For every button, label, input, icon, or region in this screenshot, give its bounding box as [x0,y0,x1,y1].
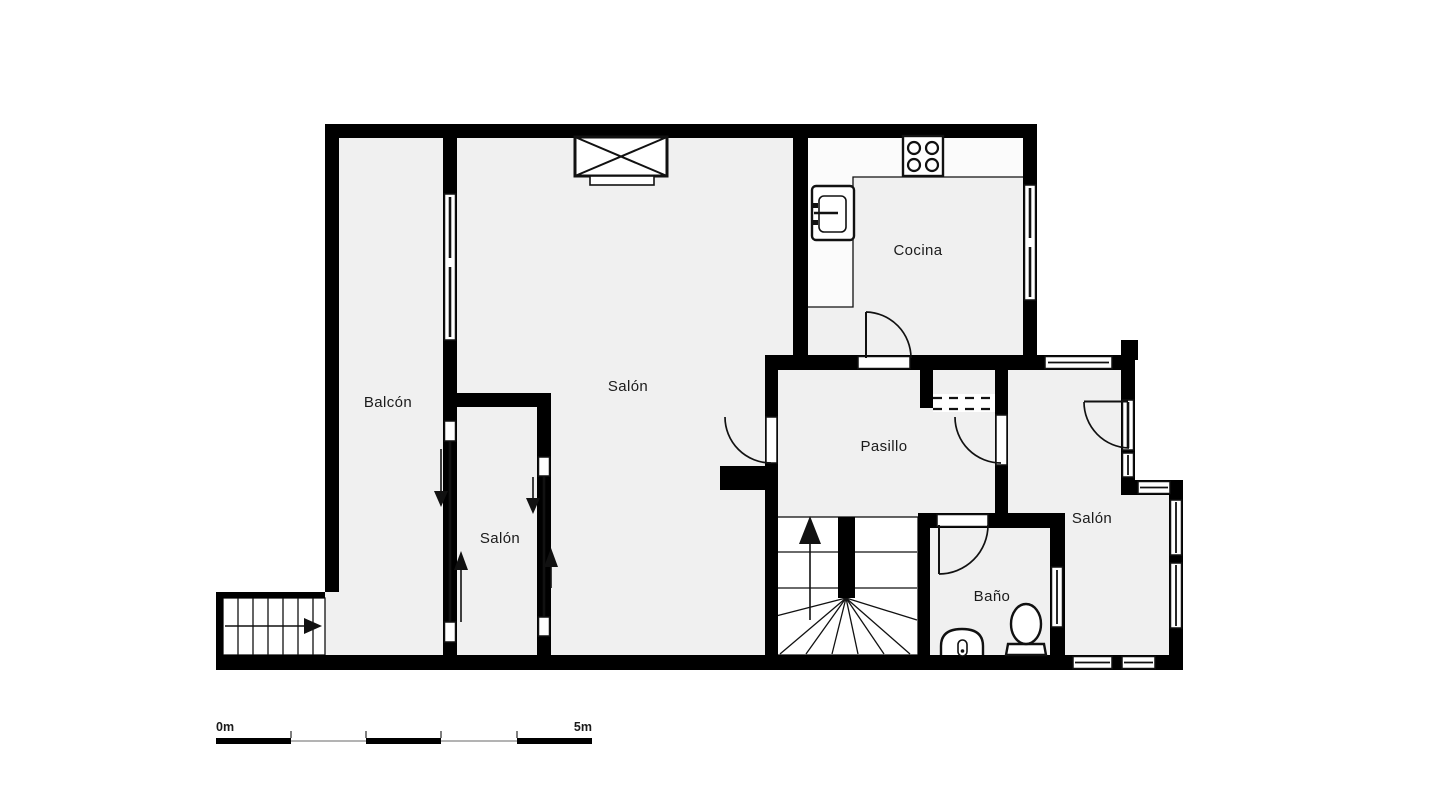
room-label-salon-small: Salón [480,530,520,547]
wall-salon-small-top [443,393,551,407]
floor-plan-page: Balcón Salón Salón Cocina Pasillo Baño S… [0,0,1440,810]
room-label-bano: Baño [974,588,1011,605]
window-salon-right-east [1123,453,1134,477]
room-label-balcon: Balcón [364,394,412,411]
building-floor [216,124,1183,670]
entrance-staircase [223,598,325,655]
scale-ticks [291,731,517,738]
window-cocina-right [1025,185,1036,300]
room-label-salon-right: Salón [1072,510,1112,527]
scale-label-start: 0m [216,720,234,734]
scale-label-end: 5m [574,720,592,734]
room-label-pasillo: Pasillo [861,438,908,455]
room-label-cocina: Cocina [893,242,942,259]
wall-left [325,124,339,592]
stair-divider-wall [838,517,855,598]
scale-bar: 0m 5m [216,720,592,744]
floor-plan-svg: Balcón Salón Salón Cocina Pasillo Baño S… [0,0,1440,810]
floor-area [216,124,1183,670]
interior-staircase [775,516,918,655]
room-label-salon-main: Salón [608,378,648,395]
window-bano-right [1052,567,1063,627]
scale-segment [517,738,592,744]
stove-icon [903,136,943,176]
window-salon-right-lower-wall [1171,500,1182,628]
window-balcon-divider [445,194,456,340]
wall-salon-cocina-divider [793,124,808,370]
window-salon-right-top [1045,357,1112,369]
scale-segment [216,738,291,744]
wall-stair-right [918,513,930,655]
scale-segment [366,738,441,744]
window-salon-right-step [1138,482,1170,494]
wall-pasillo-left [765,370,778,655]
bidet-icon [941,629,983,656]
closet-dashed-opening [933,394,995,412]
wall-closet-stub [920,368,933,408]
wall-bottom [216,655,1183,670]
wall-stub-pasillo [720,466,768,490]
kitchen-sink-icon [812,186,854,240]
wall-entrance-top [216,592,325,598]
